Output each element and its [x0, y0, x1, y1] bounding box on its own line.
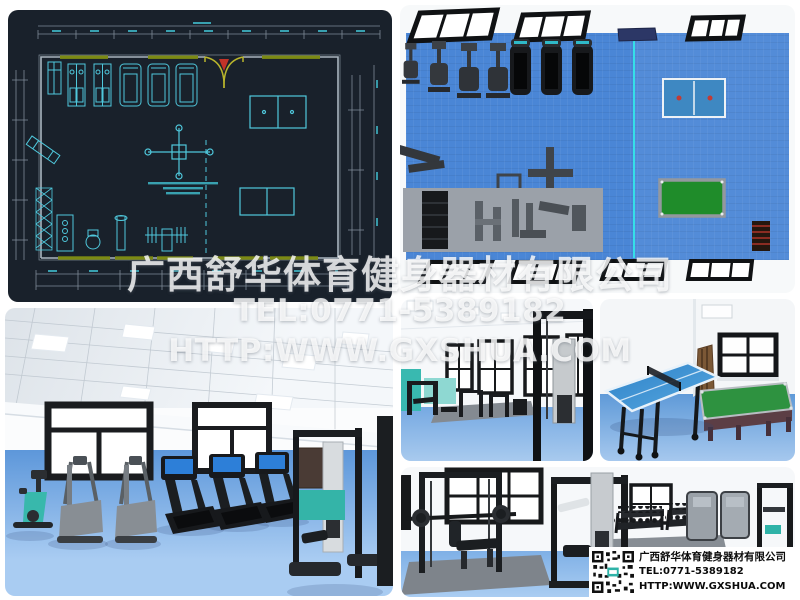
- table-tennis-symbol: [250, 96, 306, 128]
- dimension-lines-left: [12, 70, 28, 260]
- treadmill-symbol: [176, 64, 197, 106]
- room-wall-outer: [39, 55, 340, 260]
- corner-machine: [757, 483, 793, 555]
- weight-tower-symbol: [57, 215, 73, 251]
- bench-press-symbol: [145, 227, 188, 251]
- table-tennis-room-panel: [600, 299, 795, 461]
- treadmill-top: [572, 39, 593, 95]
- window-segments: [58, 56, 320, 260]
- right-wall-lines: [348, 65, 374, 258]
- top-view-panel: [400, 5, 795, 293]
- cardio-room-scene: [5, 308, 393, 596]
- left-wall-window: [401, 475, 411, 530]
- dimension-lines-bottom: [36, 270, 348, 290]
- dimension-lines-top: [38, 26, 380, 39]
- cross-trainer-symbol: [145, 125, 213, 179]
- ping-pong-table: [606, 363, 718, 461]
- treadmill-top: [510, 39, 531, 95]
- equipment-symbols-bottom-row: [57, 215, 188, 251]
- multi-gym-symbol: [68, 64, 85, 106]
- treadmill-symbol: [120, 64, 141, 106]
- wall-bars: [752, 221, 770, 251]
- machine-cabinets: [687, 492, 749, 540]
- billiard-table: [700, 382, 793, 441]
- wall-board: [297, 448, 323, 488]
- post-symbol: [115, 216, 127, 251]
- bench-symbol: [48, 62, 61, 94]
- contact-info-box: 广西舒华体育健身器材有限公司 TEL:0771-5389182 HTTP:WWW…: [589, 547, 800, 597]
- gym-promo-collage: 广西舒华体育健身器材有限公司 TEL:0771-5389182 HTTP:WWW…: [0, 0, 800, 600]
- machines-room-panel: [401, 299, 593, 461]
- cad-drawing: [8, 10, 392, 302]
- skylight-windows: [410, 10, 743, 41]
- info-website: HTTP:WWW.GXSHUA.COM: [639, 580, 786, 595]
- equipment-symbols-top-row: [48, 62, 197, 106]
- plan-annotation-text: [148, 182, 218, 194]
- window: [48, 405, 150, 477]
- qr-code-icon: [592, 551, 634, 593]
- dumbbell-rack: [614, 506, 664, 533]
- cardio-room-panel: [5, 308, 393, 596]
- machines-room-scene: [401, 299, 593, 461]
- incline-bench-symbol: [26, 136, 60, 164]
- top-view-scene: [400, 5, 795, 293]
- table-tennis-table-top: [663, 79, 725, 117]
- ceiling-light-panels: [407, 301, 515, 320]
- info-tel: TEL:0771-5389182: [639, 565, 786, 580]
- cardio-machines-left: [402, 41, 510, 98]
- room-walls: [41, 57, 338, 258]
- dumbbell-rack-symbol: [36, 188, 52, 250]
- treadmill-symbol: [148, 64, 169, 106]
- billiard-table-top: [660, 180, 724, 216]
- table-tennis-scene: [600, 299, 795, 461]
- navy-mat: [618, 28, 657, 41]
- treadmill-top: [541, 39, 562, 95]
- floor-plan-panel: [8, 10, 392, 302]
- table-symbol: [240, 188, 294, 215]
- info-company: 广西舒华体育健身器材有限公司: [639, 550, 786, 565]
- window: [717, 335, 779, 381]
- kettlebell-symbol: [86, 230, 100, 249]
- multi-gym-frame-right: [377, 416, 393, 586]
- multi-gym-symbol: [94, 64, 111, 106]
- ceiling-light: [702, 305, 732, 318]
- dimension-text-marks-top: [52, 23, 372, 31]
